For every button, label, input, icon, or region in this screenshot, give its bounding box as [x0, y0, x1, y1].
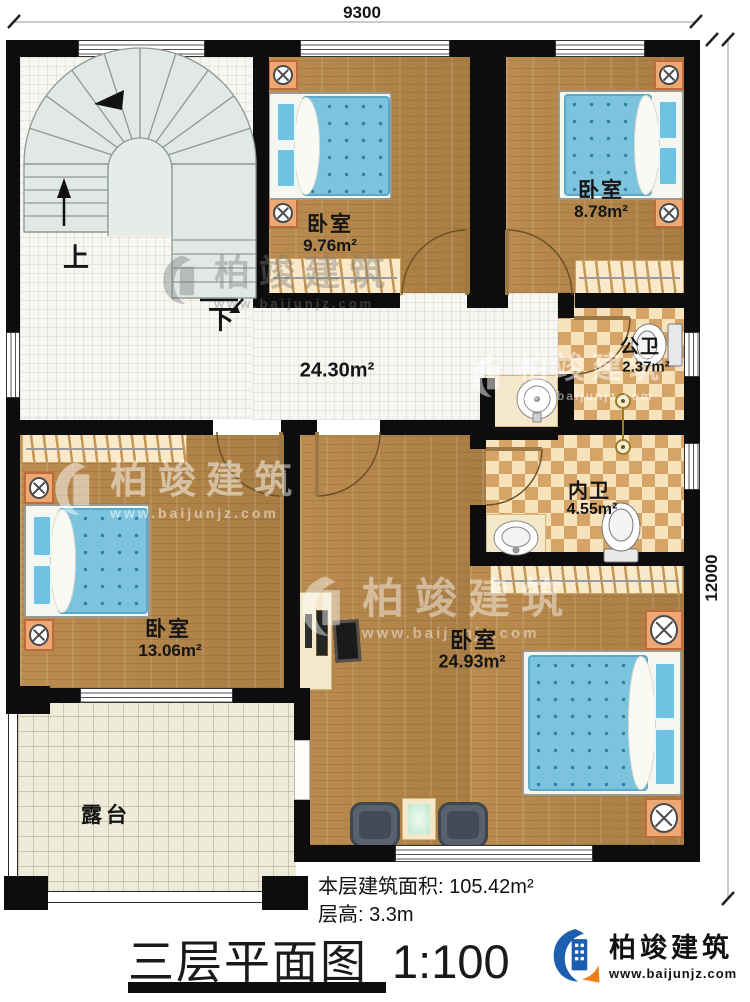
floor-area-note: 本层建筑面积: 105.42m²	[318, 870, 534, 899]
brand-name: 柏竣建筑	[609, 935, 737, 962]
room-name-public-bath: 公卫	[620, 332, 660, 359]
stair-up-label: 上	[63, 238, 89, 275]
floor-height-value: 3.3m	[369, 904, 413, 926]
title-underline-bar	[128, 982, 386, 993]
room-area-public-bath: 2.37m²	[622, 359, 670, 376]
room-name-bedroom-left: 卧室	[145, 613, 191, 643]
brand-logo: 柏竣建筑 www.baijunjz.com	[550, 928, 737, 986]
room-area-hall: 24.30m²	[300, 360, 375, 383]
brand-logo-icon	[550, 928, 600, 986]
floor-plan-canvas: 柏竣建筑 www.baijunjz.com 柏竣建筑 www.baijunjz.…	[0, 0, 750, 1002]
floor-height-label: 层高:	[318, 904, 364, 926]
room-area-bedroom-left: 13.06m²	[138, 641, 201, 661]
floor-drain-icons	[616, 394, 630, 454]
floor-height-note: 层高: 3.3m	[318, 898, 414, 927]
sink-icon-hall	[517, 379, 557, 422]
dimension-right-label: 12000	[702, 554, 722, 601]
room-area-master-bedroom: 24.93m²	[438, 652, 505, 673]
room-area-bedroom-top-right: 8.78m²	[574, 202, 628, 222]
floor-area-label: 本层建筑面积:	[318, 876, 444, 898]
drawing-scale: 1:100	[392, 934, 510, 989]
room-name-bedroom-top-mid: 卧室	[307, 208, 353, 238]
stair-down-label: 下	[208, 300, 234, 337]
room-name-ensuite-bath: 内卫	[568, 475, 610, 504]
room-name-master-bedroom: 卧室	[450, 623, 498, 655]
brand-url: www.baijunjz.com	[609, 967, 737, 980]
sink-icon-ensuite	[494, 521, 538, 555]
staircase-icon	[24, 48, 256, 298]
door-swings	[217, 230, 630, 505]
dimension-top-label: 9300	[343, 3, 381, 23]
room-area-ensuite-bath: 4.55m²	[567, 501, 618, 519]
plan-linework	[0, 0, 750, 1002]
room-name-terrace: 露台	[81, 799, 131, 829]
floor-area-value: 105.42m²	[449, 876, 534, 898]
room-name-bedroom-top-right: 卧室	[578, 174, 624, 204]
room-area-bedroom-top-mid: 9.76m²	[303, 236, 357, 256]
